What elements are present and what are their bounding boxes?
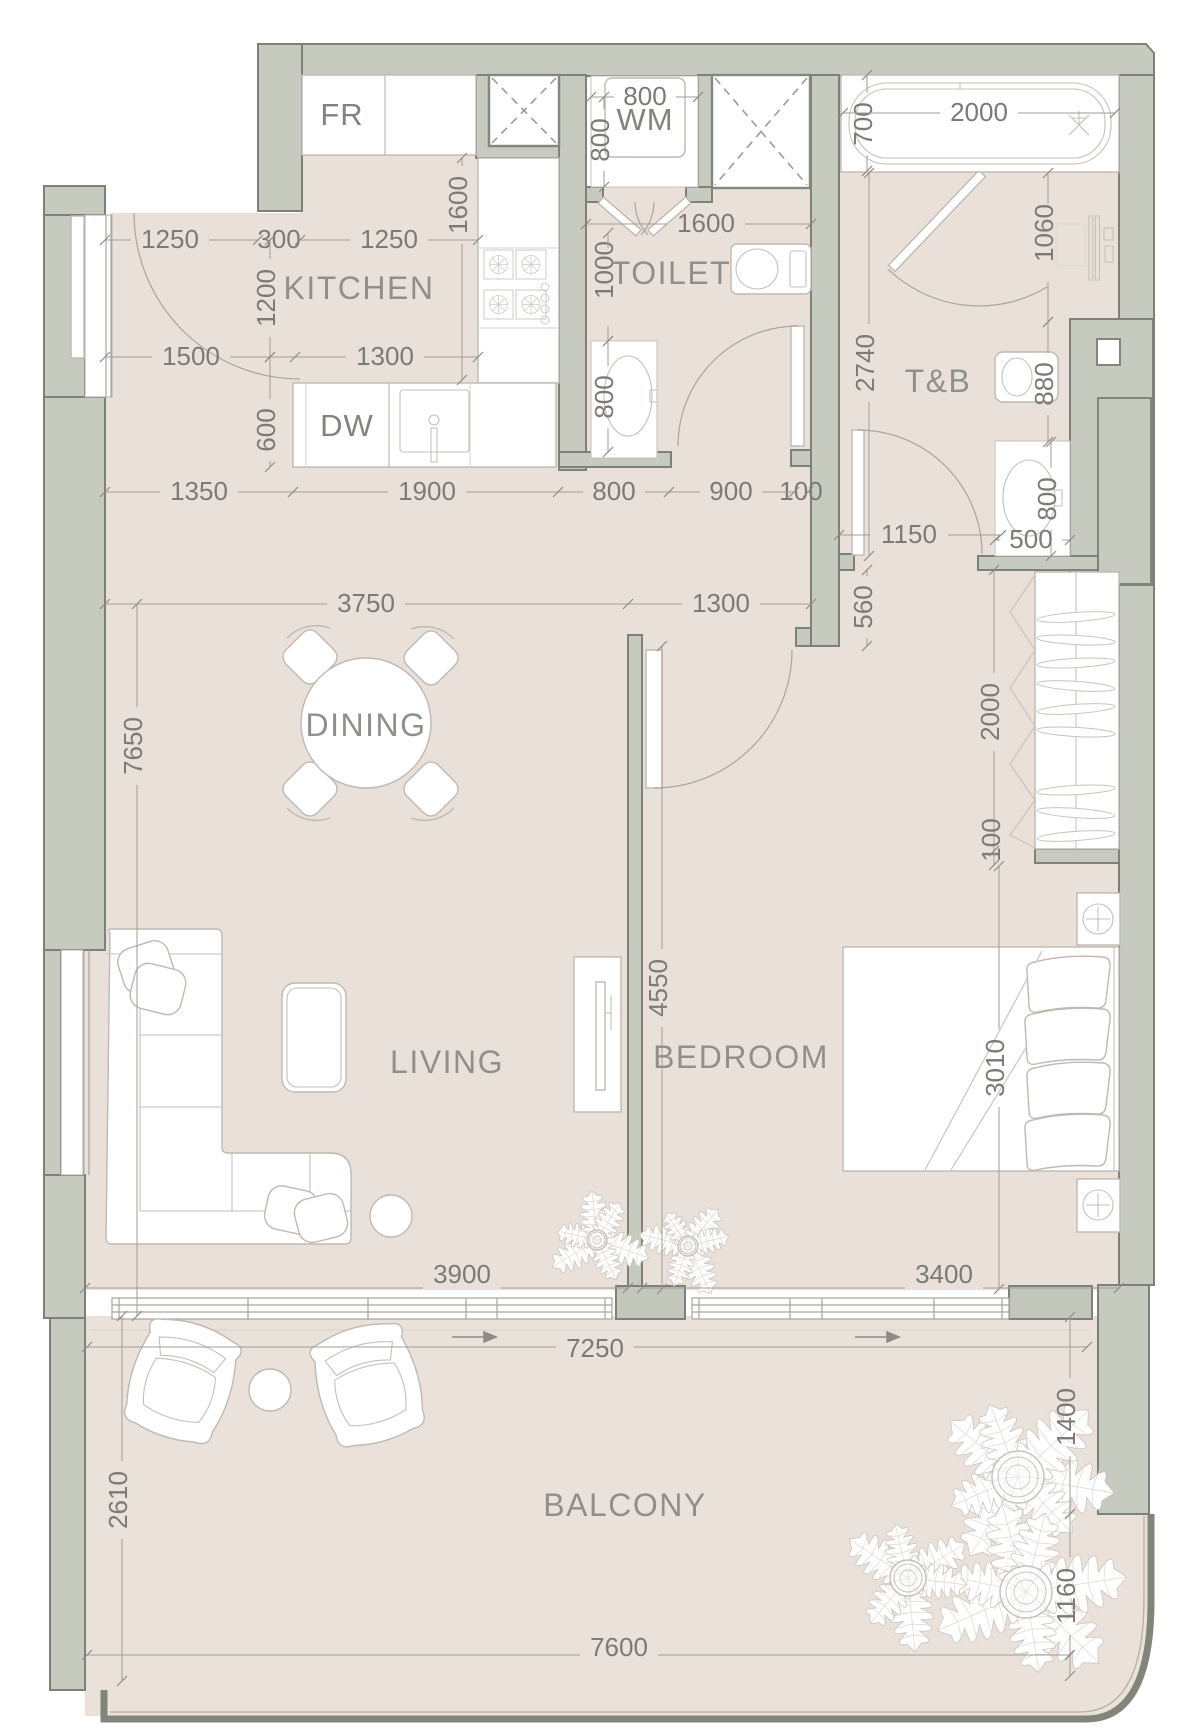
svg-text:1250: 1250: [141, 224, 199, 254]
svg-text:1300: 1300: [356, 341, 414, 371]
svg-text:100: 100: [976, 818, 1006, 861]
svg-text:DW: DW: [320, 408, 374, 443]
svg-text:500: 500: [1009, 524, 1052, 554]
svg-text:800: 800: [592, 476, 635, 506]
svg-text:2740: 2740: [850, 334, 880, 392]
svg-text:600: 600: [251, 408, 281, 451]
svg-text:1250: 1250: [360, 224, 418, 254]
svg-text:7250: 7250: [566, 1333, 624, 1363]
svg-text:1600: 1600: [443, 176, 473, 234]
svg-text:100: 100: [779, 476, 822, 506]
svg-text:3400: 3400: [915, 1259, 973, 1289]
svg-text:1350: 1350: [170, 476, 228, 506]
svg-text:1400: 1400: [1051, 1388, 1081, 1446]
svg-text:900: 900: [709, 476, 752, 506]
svg-text:1060: 1060: [1029, 204, 1059, 262]
svg-text:3750: 3750: [337, 588, 395, 618]
svg-text:1160: 1160: [1051, 1568, 1081, 1624]
svg-text:LIVING: LIVING: [390, 1044, 504, 1080]
svg-text:3900: 3900: [433, 1259, 491, 1289]
svg-text:4550: 4550: [643, 959, 673, 1017]
svg-text:1900: 1900: [398, 476, 456, 506]
svg-text:2610: 2610: [103, 1471, 133, 1529]
svg-text:FR: FR: [320, 97, 363, 132]
svg-text:T&B: T&B: [905, 363, 972, 399]
svg-text:2000: 2000: [950, 97, 1008, 127]
svg-text:KITCHEN: KITCHEN: [284, 270, 435, 306]
svg-text:2000: 2000: [975, 683, 1005, 741]
svg-text:3010: 3010: [980, 1039, 1010, 1097]
svg-text:1600: 1600: [677, 208, 735, 238]
svg-text:800: 800: [623, 81, 666, 111]
svg-text:7600: 7600: [590, 1632, 648, 1662]
svg-text:1500: 1500: [162, 341, 220, 371]
svg-text:880: 880: [1029, 362, 1059, 405]
svg-text:800: 800: [589, 375, 619, 418]
svg-text:560: 560: [848, 585, 878, 628]
svg-text:300: 300: [257, 224, 300, 254]
svg-text:800: 800: [585, 118, 615, 161]
svg-text:DINING: DINING: [306, 707, 427, 743]
svg-text:TOILET: TOILET: [611, 255, 731, 291]
svg-text:BEDROOM: BEDROOM: [653, 1039, 829, 1075]
svg-text:1200: 1200: [251, 269, 281, 327]
svg-text:BALCONY: BALCONY: [543, 1487, 706, 1523]
svg-text:1150: 1150: [881, 519, 937, 549]
svg-text:800: 800: [1032, 477, 1062, 520]
svg-text:7650: 7650: [118, 717, 148, 775]
svg-text:700: 700: [848, 102, 878, 145]
svg-text:1300: 1300: [692, 588, 750, 618]
